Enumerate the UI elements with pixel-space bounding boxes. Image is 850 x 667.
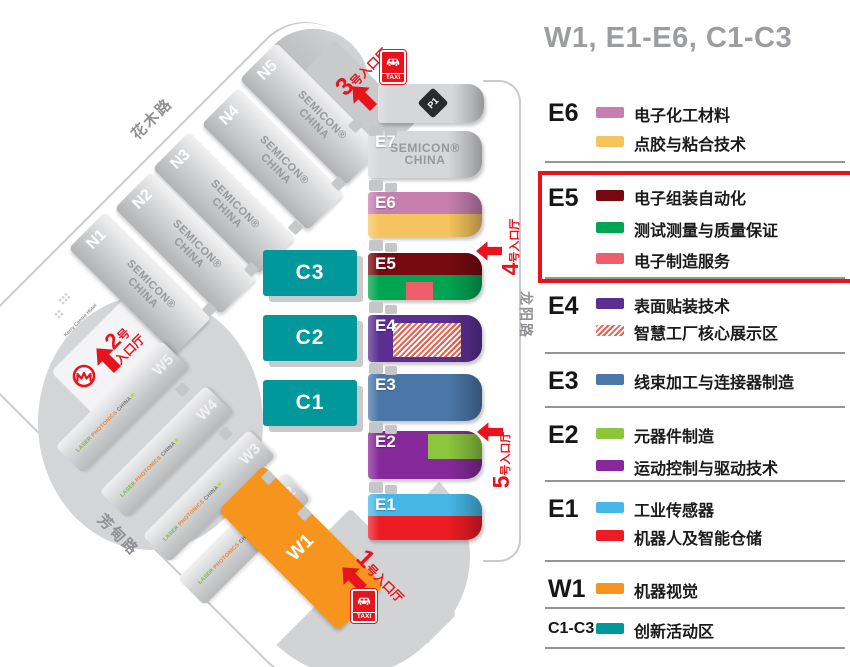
e5-zone-patch	[406, 282, 433, 300]
legend-swatch	[596, 460, 624, 471]
hall-e5: E5	[368, 253, 482, 300]
legend-divider	[545, 480, 845, 482]
hall-e2-label: E2	[375, 432, 396, 452]
e1-zone-bottom	[368, 516, 482, 540]
hall-connector	[369, 180, 383, 191]
hall-c2: C2	[263, 315, 357, 361]
taxi-stand-icon: TAXI	[351, 589, 377, 623]
legend-swatch	[596, 222, 624, 233]
legend-item-label: 电子化工材料	[634, 102, 730, 126]
hall-e4: E4	[368, 315, 482, 362]
hall-connector	[369, 482, 383, 493]
e2-zone-patch	[428, 434, 482, 459]
legend-swatch	[596, 190, 624, 201]
legend-divider	[545, 161, 845, 163]
parking-icon: P1	[417, 87, 448, 118]
hall-e3-label: E3	[375, 375, 396, 395]
legend-item-label: 电子制造服务	[634, 248, 730, 272]
legend-item-label: 创新活动区	[634, 618, 714, 642]
legend-swatch-hatch	[596, 325, 624, 336]
legend-divider	[545, 607, 845, 609]
hall-w4-label: W4	[193, 395, 223, 425]
hall-e6: E6	[368, 192, 482, 237]
legend-section-e4: E4	[548, 292, 579, 321]
legend-divider	[545, 647, 845, 649]
legend-item-label: 机器视觉	[634, 578, 698, 602]
metro-station-icon	[72, 364, 96, 388]
legend-swatch	[596, 136, 624, 147]
legend-swatch	[596, 374, 624, 385]
hall-c1: C1	[263, 380, 357, 426]
hall-e3: E3	[368, 374, 482, 421]
hall-connector	[385, 366, 397, 375]
hall-e1: E1	[368, 494, 482, 540]
taxi-label: TAXI	[353, 612, 375, 620]
taxi-label: TAXI	[382, 73, 404, 81]
hall-connector	[385, 305, 397, 314]
hall-connector	[369, 363, 383, 374]
legend-swatch	[596, 298, 624, 309]
hall-e2: E2	[368, 431, 482, 479]
hall-connector	[385, 183, 397, 192]
legend-item-label: 测试测量与质量保证	[634, 217, 778, 241]
road-label-longyang: 龙阳路	[516, 291, 536, 339]
floorplan-canvas: 花木路 龙阳路 芳甸路 N5 SEMICON®CHINA N4 SEMICON®…	[0, 0, 850, 667]
hall-c3-label: C3	[296, 261, 325, 285]
legend-divider	[545, 277, 845, 279]
legend-section-e6: E6	[548, 99, 579, 128]
legend-divider	[545, 406, 845, 408]
hall-c1-label: C1	[296, 391, 325, 415]
legend-swatch	[596, 428, 624, 439]
hall-c2-label: C2	[296, 326, 325, 350]
hall-e7: E7 SEMICON®CHINA	[368, 131, 482, 178]
e6-zone-bottom	[368, 214, 482, 237]
hall-w3-label: W3	[236, 439, 266, 469]
hall-connector	[369, 240, 383, 251]
legend-section-e1: E1	[548, 495, 579, 524]
legend-item-label: 表面贴装技术	[634, 293, 730, 317]
legend-swatch	[596, 107, 624, 118]
legend-section-w1: W1	[548, 575, 586, 604]
hall-connector	[385, 243, 397, 252]
hall-w1-label: W1	[278, 525, 323, 570]
legend-item-label: 智慧工厂核心展示区	[634, 320, 778, 344]
entrance-5-label: 5号入口厅	[490, 420, 518, 500]
hall-c3: C3	[263, 250, 357, 296]
taxi-car-icon	[356, 596, 372, 606]
hall-connector	[369, 302, 383, 313]
legend-swatch	[596, 253, 624, 264]
legend-item-label: 元器件制造	[634, 423, 714, 447]
legend-section-c1-c3: C1-C3	[548, 620, 594, 638]
legend-section-e2: E2	[548, 421, 579, 450]
e4-smart-factory-zone	[393, 323, 461, 357]
hall-p1-parking: P1	[378, 84, 484, 123]
hall-e1-label: E1	[375, 495, 396, 515]
hall-e5-label: E5	[375, 254, 396, 274]
legend-item-label: 线束加工与连接器制造	[634, 369, 794, 393]
legend-section-e3: E3	[548, 367, 579, 396]
legend-swatch	[596, 502, 624, 513]
legend-swatch	[596, 530, 624, 541]
legend-section-e5: E5	[548, 184, 579, 213]
legend-item-label: 运动控制与驱动技术	[634, 455, 778, 479]
legend-item-label: 电子组装自动化	[634, 185, 746, 209]
hall-e6-label: E6	[375, 193, 396, 213]
legend-item-label: 点胶与粘合技术	[634, 131, 746, 155]
taxi-stand-icon: TAXI	[380, 50, 406, 84]
legend-item-label: 工业传感器	[634, 497, 714, 521]
hall-e4-label: E4	[375, 316, 396, 336]
hall-e7-label: E7	[375, 132, 396, 152]
legend-divider	[545, 560, 845, 562]
legend-title: W1, E1-E6, C1-C3	[544, 22, 792, 55]
hall-connector	[385, 485, 397, 494]
entrance-4-label: 4号入口厅	[499, 207, 527, 287]
taxi-car-icon	[385, 57, 401, 67]
legend-item-label: 机器人及智能仓储	[634, 525, 762, 549]
legend-divider	[545, 352, 845, 354]
legend-swatch	[596, 583, 624, 594]
hall-w5-label: W5	[149, 350, 179, 380]
legend-swatch	[596, 623, 624, 634]
